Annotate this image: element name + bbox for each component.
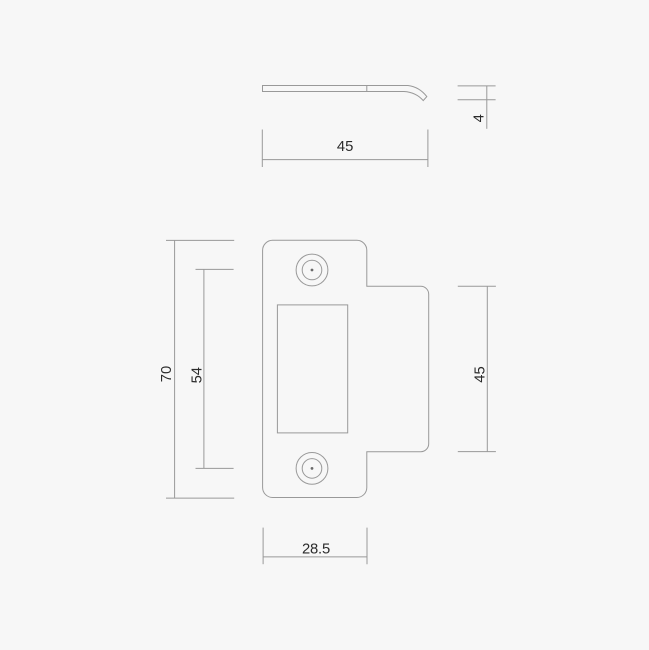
svg-text:28.5: 28.5 [302, 541, 330, 557]
svg-text:4: 4 [472, 114, 488, 122]
svg-text:45: 45 [472, 366, 488, 382]
svg-text:45: 45 [337, 139, 353, 155]
svg-text:54: 54 [190, 367, 206, 383]
svg-text:70: 70 [159, 366, 175, 382]
